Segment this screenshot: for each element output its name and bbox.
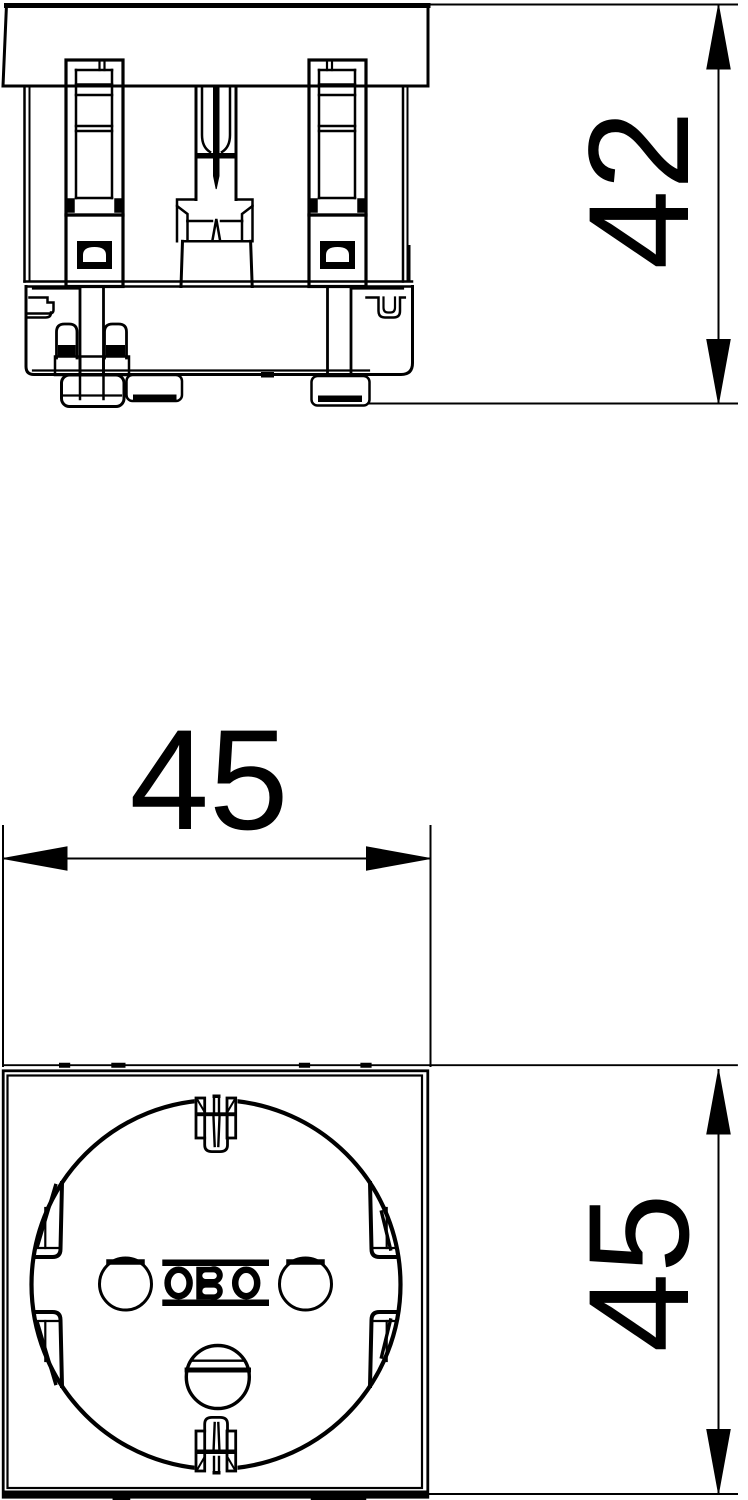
svg-text:45: 45 bbox=[560, 1193, 719, 1352]
svg-text:45: 45 bbox=[129, 701, 288, 860]
svg-text:42: 42 bbox=[560, 110, 719, 269]
